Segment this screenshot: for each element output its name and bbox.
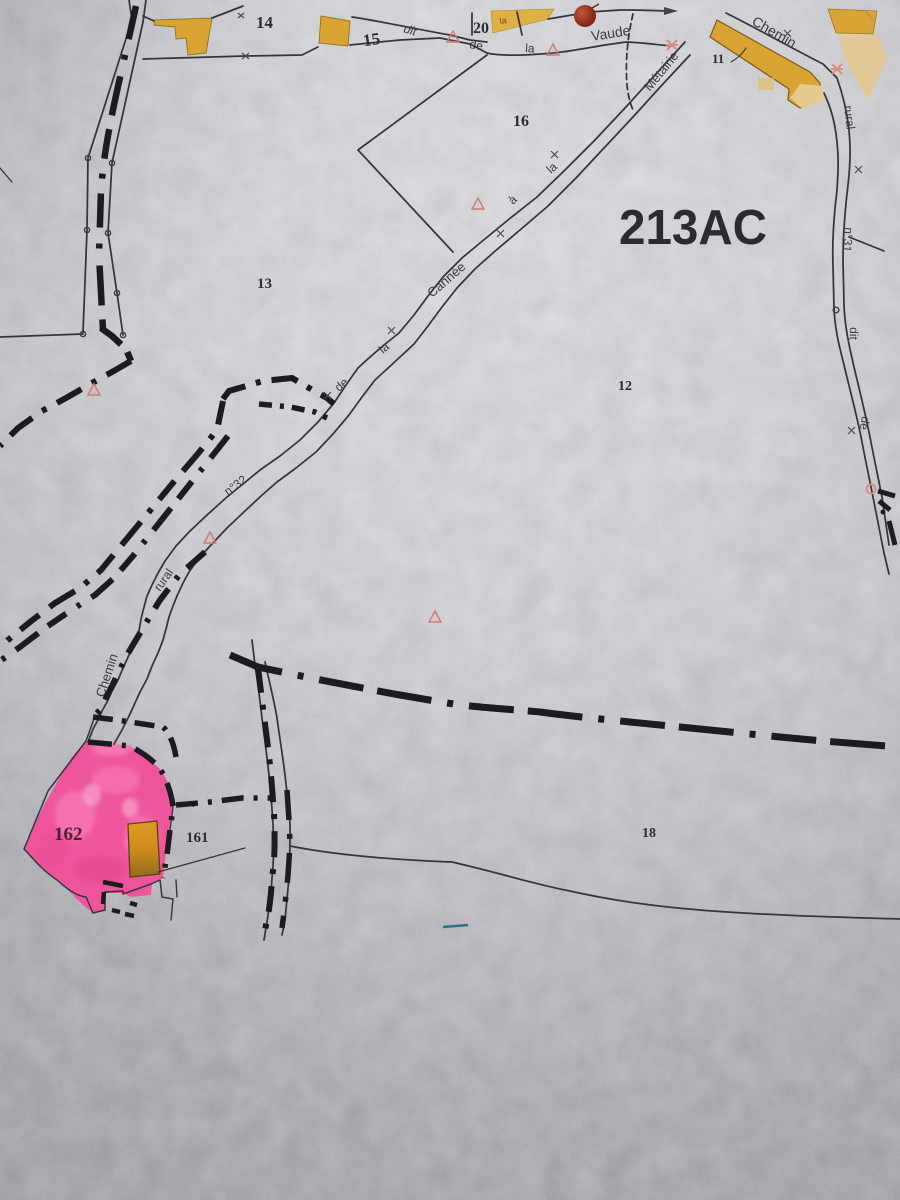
svg-text:12: 12	[618, 379, 632, 394]
svg-text:la: la	[499, 15, 507, 26]
svg-text:dit: dit	[847, 327, 861, 341]
svg-text:14: 14	[256, 13, 274, 32]
svg-text:la: la	[525, 41, 536, 56]
svg-text:13: 13	[257, 276, 272, 292]
svg-text:161: 161	[186, 830, 209, 846]
svg-text:162: 162	[54, 824, 83, 845]
svg-text:rural: rural	[841, 105, 858, 131]
svg-text:de: de	[468, 37, 484, 53]
svg-text:11: 11	[712, 51, 724, 66]
svg-text:de: de	[857, 415, 873, 431]
svg-text:18: 18	[642, 826, 656, 841]
svg-text:n°31: n°31	[840, 227, 856, 253]
svg-text:213AC: 213AC	[619, 201, 767, 255]
svg-text:15: 15	[362, 29, 381, 50]
svg-text:20: 20	[473, 20, 489, 37]
svg-text:16: 16	[513, 113, 529, 130]
